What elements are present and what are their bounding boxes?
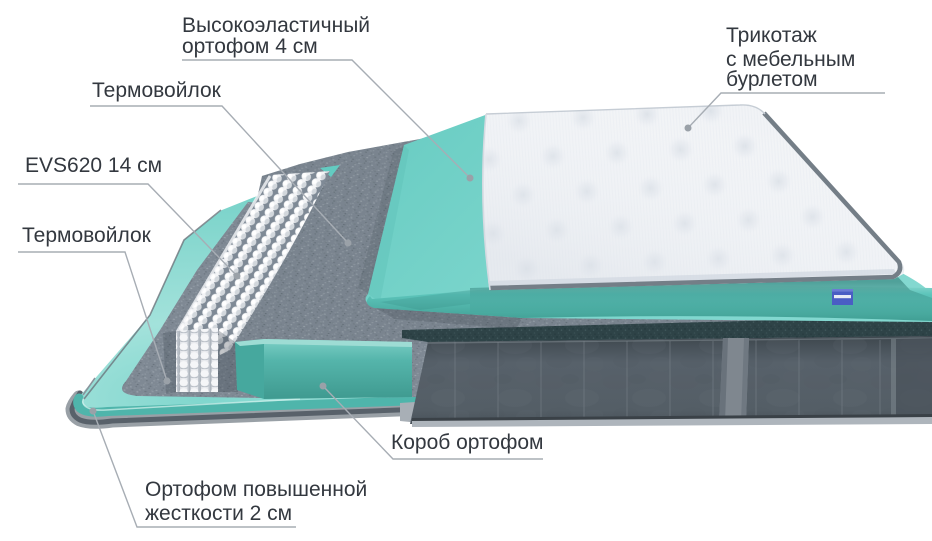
svg-text:ортофом 4 см: ортофом 4 см	[182, 35, 318, 58]
svg-text:Термовойлок: Термовойлок	[22, 224, 152, 247]
svg-text:Ортофом повышенной: Ортофом повышенной	[145, 478, 367, 501]
svg-text:Термовойлок: Термовойлок	[92, 79, 222, 102]
svg-text:Высокоэластичный: Высокоэластичный	[182, 14, 370, 37]
svg-text:EVS620 14 см: EVS620 14 см	[25, 154, 162, 177]
svg-text:Короб ортофом: Короб ортофом	[391, 431, 544, 454]
svg-text:Трикотаж: Трикотаж	[726, 24, 817, 47]
svg-text:жесткости 2 см: жесткости 2 см	[145, 502, 292, 525]
svg-text:бурлетом: бурлетом	[726, 68, 818, 91]
